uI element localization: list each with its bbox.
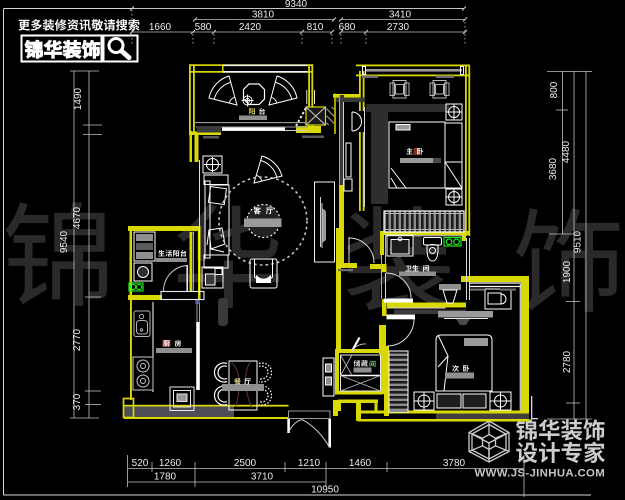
svg-text:4670: 4670 bbox=[72, 206, 83, 229]
svg-text:1780: 1780 bbox=[154, 472, 177, 483]
svg-text:520: 520 bbox=[132, 458, 149, 469]
svg-text:1660: 1660 bbox=[149, 22, 172, 33]
svg-text:9540: 9540 bbox=[59, 230, 70, 253]
svg-text:1260: 1260 bbox=[159, 458, 182, 469]
svg-text:9510: 9510 bbox=[573, 230, 584, 253]
svg-text:580: 580 bbox=[195, 22, 212, 33]
svg-text:800: 800 bbox=[549, 81, 560, 98]
svg-text:3410: 3410 bbox=[389, 10, 412, 21]
svg-text:10950: 10950 bbox=[311, 485, 339, 496]
svg-text:2770: 2770 bbox=[72, 328, 83, 351]
svg-text:810: 810 bbox=[307, 22, 324, 33]
svg-text:1460: 1460 bbox=[349, 458, 372, 469]
svg-text:2780: 2780 bbox=[562, 350, 573, 373]
svg-text:1210: 1210 bbox=[298, 458, 321, 469]
svg-text:370: 370 bbox=[72, 393, 83, 410]
svg-text:4480: 4480 bbox=[561, 140, 572, 163]
svg-text:2420: 2420 bbox=[239, 22, 262, 33]
svg-text:WWW.JS-JINHUA.COM: WWW.JS-JINHUA.COM bbox=[475, 468, 606, 480]
svg-text:2730: 2730 bbox=[387, 22, 410, 33]
svg-text:3780: 3780 bbox=[443, 458, 466, 469]
svg-text:3680: 3680 bbox=[548, 157, 559, 180]
svg-text:3710: 3710 bbox=[251, 472, 274, 483]
svg-text:9340: 9340 bbox=[285, 0, 308, 10]
svg-text:2500: 2500 bbox=[234, 458, 257, 469]
svg-text:3810: 3810 bbox=[252, 10, 275, 21]
svg-text:1900: 1900 bbox=[562, 260, 573, 283]
svg-text:1490: 1490 bbox=[73, 87, 84, 110]
